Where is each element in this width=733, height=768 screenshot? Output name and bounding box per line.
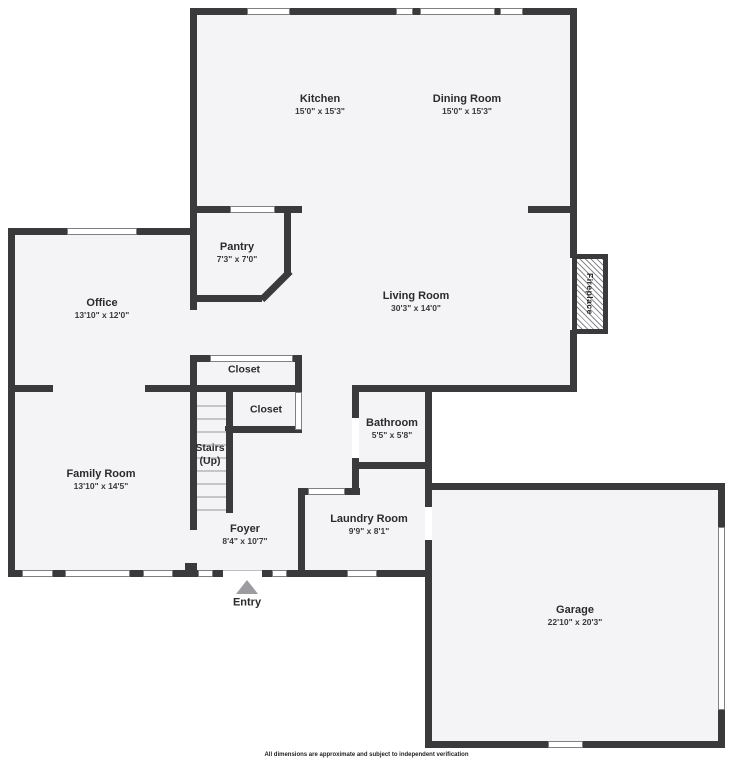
wall <box>295 355 302 395</box>
room-name: Kitchen <box>295 93 345 106</box>
window <box>347 570 377 577</box>
wall <box>185 563 197 570</box>
window <box>500 8 523 15</box>
wall <box>425 483 725 490</box>
room-label-garage: Garage 22'10" x 20'3" <box>548 604 603 628</box>
room-name: Stairs <box>195 442 224 455</box>
window <box>198 570 213 577</box>
room-dims: 8'4" x 10'7" <box>222 536 267 547</box>
window <box>143 570 173 577</box>
closet-opening <box>295 392 302 430</box>
room-dims: 30'3" x 14'0" <box>383 303 450 314</box>
window <box>22 570 53 577</box>
fireplace: Fireplace <box>572 254 608 334</box>
room-name: Garage <box>548 604 603 617</box>
closet-opening <box>210 355 293 362</box>
window <box>65 570 130 577</box>
room-name: Closet <box>228 364 260 377</box>
room-label-living: Living Room 30'3" x 14'0" <box>383 290 450 314</box>
wall <box>8 228 15 577</box>
room-dims: 15'0" x 15'3" <box>433 106 501 117</box>
room-label-closet-lower: Closet <box>250 404 282 417</box>
room-name: Dining Room <box>433 93 501 106</box>
window <box>396 8 413 15</box>
room-name: Laundry Room <box>330 513 408 526</box>
room-label-stairs: Stairs (Up) <box>195 442 224 468</box>
wall <box>145 385 302 392</box>
room-dims: 7'3" x 7'0" <box>217 254 257 265</box>
room-dims: 9'9" x 8'1" <box>330 526 408 537</box>
entry-arrow-icon <box>236 580 258 594</box>
wall <box>190 8 197 310</box>
room-dims: 22'10" x 20'3" <box>548 617 603 628</box>
window <box>718 527 725 710</box>
room-label-pantry: Pantry 7'3" x 7'0" <box>217 241 257 265</box>
wall <box>298 495 305 577</box>
room-label-family: Family Room 13'10" x 14'5" <box>66 468 135 492</box>
room-name: Closet <box>250 404 282 417</box>
room-label-office: Office 13'10" x 12'0" <box>75 297 130 321</box>
room-name: Family Room <box>66 468 135 481</box>
entry-label: Entry <box>233 597 261 610</box>
wall <box>225 426 302 433</box>
room-label-foyer: Foyer 8'4" x 10'7" <box>222 523 267 547</box>
door-opening <box>548 741 583 748</box>
entry-door-opening <box>223 570 262 577</box>
room-name: Bathroom <box>366 417 418 430</box>
wall <box>352 385 577 392</box>
stairs-direction: (Up) <box>195 455 224 468</box>
window <box>67 228 137 235</box>
wall <box>284 206 291 275</box>
room-label-dining: Dining Room 15'0" x 15'3" <box>433 93 501 117</box>
wall <box>226 392 233 513</box>
room-label-kitchen: Kitchen 15'0" x 15'3" <box>295 93 345 117</box>
door-opening <box>425 507 432 540</box>
door-opening <box>352 418 359 458</box>
room-label-bathroom: Bathroom 5'5" x 5'8" <box>366 417 418 441</box>
room-name: Entry <box>233 597 261 610</box>
room-dims: 13'10" x 12'0" <box>75 310 130 321</box>
room-label-laundry: Laundry Room 9'9" x 8'1" <box>330 513 408 537</box>
room-label-closet-upper: Closet <box>228 364 260 377</box>
wall <box>190 295 262 302</box>
window <box>247 8 290 15</box>
wall <box>570 8 577 392</box>
window <box>272 570 287 577</box>
room-dims: 15'0" x 15'3" <box>295 106 345 117</box>
wall <box>425 388 432 748</box>
room-name: Pantry <box>217 241 257 254</box>
room-name: Living Room <box>383 290 450 303</box>
room-dims: 5'5" x 5'8" <box>366 430 418 441</box>
room-name: Office <box>75 297 130 310</box>
window <box>230 206 275 213</box>
sliding-door <box>420 8 495 15</box>
door-opening <box>308 488 345 495</box>
wall <box>352 462 432 469</box>
floorplan-canvas: Fireplace Kitchen 15'0" x 15'3" Dining R… <box>0 0 733 768</box>
fireplace-label: Fireplace <box>585 273 595 315</box>
room-name: Foyer <box>222 523 267 536</box>
footer-disclaimer: All dimensions are approximate and subje… <box>0 752 733 758</box>
room-dims: 13'10" x 14'5" <box>66 481 135 492</box>
